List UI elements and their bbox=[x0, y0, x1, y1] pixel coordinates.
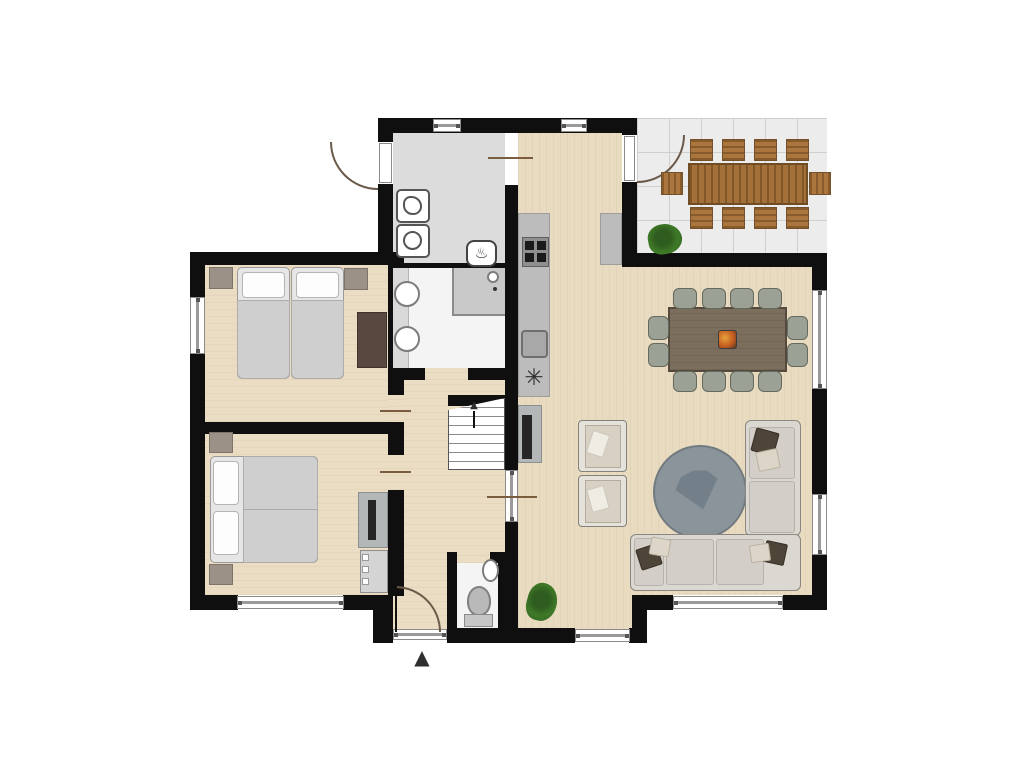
bedroom2-door-marker bbox=[380, 471, 411, 473]
wall-right-a bbox=[812, 253, 827, 291]
sliding-door-marker bbox=[487, 496, 537, 498]
bed1-right-blanket bbox=[291, 300, 344, 379]
entrance-door-leaf bbox=[395, 586, 397, 632]
sofa-pillow-light-2 bbox=[649, 536, 672, 557]
dining-chair-s2 bbox=[702, 371, 726, 392]
window-living-bottom bbox=[673, 596, 783, 609]
window-living-right-1 bbox=[812, 290, 827, 389]
wall-top bbox=[378, 118, 637, 133]
bedroom2-nightstand-top bbox=[209, 432, 233, 453]
terrace-chair-s1 bbox=[690, 207, 713, 229]
sofa-pillow-light-3 bbox=[749, 543, 771, 564]
entrance-arrow-icon: ▲ bbox=[408, 646, 436, 668]
utility-exterior-door-leaf bbox=[379, 143, 392, 183]
wall-bottom-mid-b bbox=[629, 628, 637, 643]
bed2-seam bbox=[243, 509, 318, 510]
kitchen-counter-east bbox=[600, 213, 622, 265]
utility-pass-marker bbox=[488, 157, 533, 159]
sofa-cushion-v2 bbox=[749, 481, 795, 533]
floor-plan: ▲✳♨▲ bbox=[0, 0, 1024, 768]
burner-1 bbox=[525, 241, 534, 250]
utility-exterior-door-arc bbox=[330, 142, 378, 190]
wall-terrace-a bbox=[622, 118, 637, 135]
dining-chair-s4 bbox=[758, 371, 782, 392]
fruit-bowl bbox=[718, 330, 737, 349]
burner-2 bbox=[537, 241, 546, 250]
stair-arrow-stem bbox=[473, 411, 475, 428]
terrace-chair-n3 bbox=[754, 139, 777, 161]
window-top-2 bbox=[561, 119, 587, 132]
terrace-chair-n4 bbox=[786, 139, 809, 161]
terrace-chair-s2 bbox=[722, 207, 745, 229]
terrace-table bbox=[688, 163, 808, 205]
dining-chair-e2 bbox=[787, 343, 808, 367]
wall-bedrooms-hall-b bbox=[388, 428, 404, 455]
door-gap-bathroom bbox=[425, 368, 468, 380]
extractor-fan-icon: ✳ bbox=[519, 362, 549, 394]
dining-chair-w2 bbox=[648, 343, 669, 367]
sofa-cushion-h1 bbox=[666, 539, 714, 585]
bed1-left-pillow bbox=[242, 272, 285, 298]
wall-right-b bbox=[812, 388, 827, 495]
bedroom2-nightstand-bottom bbox=[209, 564, 233, 585]
kitchen-sink bbox=[521, 330, 548, 358]
wall-bottom-left-b bbox=[343, 595, 393, 610]
window-bedroom1-left bbox=[190, 297, 205, 354]
bathroom-sink-1 bbox=[394, 281, 420, 307]
window-dining-bottom bbox=[575, 629, 630, 642]
burner-3 bbox=[525, 253, 534, 262]
wall-toilet-right bbox=[498, 552, 513, 628]
dining-chair-n1 bbox=[673, 288, 697, 309]
wall-bottom-left-a bbox=[190, 595, 238, 610]
terrace-chair-e bbox=[809, 172, 831, 195]
terrace-chair-s4 bbox=[786, 207, 809, 229]
wall-utility-left-a bbox=[378, 133, 393, 142]
toilet-sink bbox=[482, 559, 499, 582]
wall-kitchen-a bbox=[505, 185, 518, 470]
wall-under-terrace bbox=[622, 253, 812, 267]
bedroom1-wardrobe bbox=[357, 312, 387, 368]
dining-chair-s3 bbox=[730, 371, 754, 392]
boiler-flame-icon: ♨ bbox=[466, 240, 497, 267]
shower-head bbox=[487, 271, 499, 283]
terrace-chair-w bbox=[661, 172, 683, 195]
bathroom-sink-2 bbox=[394, 326, 420, 352]
closet-knob-1 bbox=[362, 554, 369, 561]
washing-machine-drum bbox=[403, 196, 422, 215]
bed1-left-blanket bbox=[237, 300, 290, 379]
dining-chair-e1 bbox=[787, 316, 808, 340]
dining-chair-w1 bbox=[648, 316, 669, 340]
wall-toilet-left bbox=[447, 552, 457, 628]
dining-chair-n4 bbox=[758, 288, 782, 309]
bedroom1-nightstand-right bbox=[344, 268, 368, 290]
wall-bedroom1-top bbox=[190, 252, 404, 265]
bed2-pillow-bottom bbox=[213, 511, 239, 555]
dining-chair-n3 bbox=[730, 288, 754, 309]
terrace-chair-n1 bbox=[690, 139, 713, 161]
window-top-1 bbox=[433, 119, 461, 132]
wall-bath-bottom-a bbox=[390, 368, 425, 380]
terrace-door-leaf bbox=[624, 136, 635, 181]
window-bedroom2-bottom bbox=[237, 596, 344, 609]
dining-chair-s1 bbox=[673, 371, 697, 392]
toilet-bowl bbox=[467, 586, 491, 616]
dryer-drum bbox=[403, 231, 422, 250]
terrace-chair-n2 bbox=[722, 139, 745, 161]
living-tv bbox=[522, 415, 532, 459]
wall-bedrooms-hall-c bbox=[388, 490, 404, 596]
window-living-right-2 bbox=[812, 494, 827, 555]
wall-terrace-b bbox=[622, 182, 637, 253]
burner-4 bbox=[537, 253, 546, 262]
wall-bottom-right-b bbox=[783, 595, 827, 610]
toilet-tank bbox=[464, 614, 493, 627]
bedroom1-door-marker bbox=[380, 410, 411, 412]
shower-drain bbox=[493, 287, 497, 291]
bedroom1-nightstand-left bbox=[209, 267, 233, 289]
terrace-chair-s3 bbox=[754, 207, 777, 229]
dining-chair-n2 bbox=[702, 288, 726, 309]
wall-left-b bbox=[190, 353, 205, 610]
bedroom2-tv bbox=[368, 500, 376, 540]
bed1-right-pillow bbox=[296, 272, 339, 298]
wall-bottom-mid-a bbox=[447, 628, 575, 643]
bed2-pillow-top bbox=[213, 461, 239, 505]
closet-knob-2 bbox=[362, 566, 369, 573]
closet-knob-3 bbox=[362, 578, 369, 585]
